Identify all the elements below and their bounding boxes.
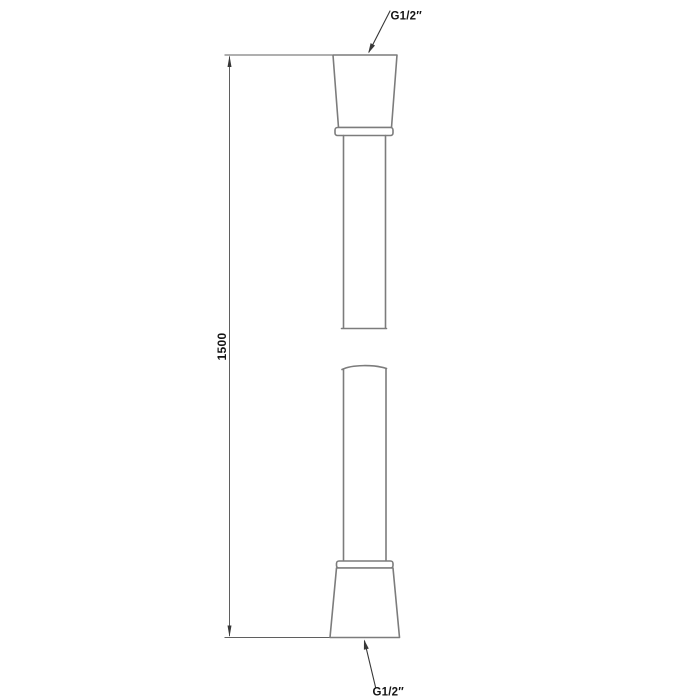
leader-arrow-bottom-icon	[364, 640, 369, 650]
dimension-arrow-down-icon	[228, 626, 232, 638]
bottom-connector-cone	[330, 568, 400, 638]
drawing-canvas: G1/2″ G1/2″ 1500	[0, 0, 700, 700]
top-connector-cone	[333, 55, 397, 128]
top-thread-label: G1/2″	[391, 11, 423, 23]
hose-outline-group	[330, 55, 400, 638]
hose-break-wave-line	[342, 366, 387, 370]
length-dimension-label: 1500	[215, 333, 229, 361]
dimension-group	[225, 55, 335, 638]
top-connector-collar	[335, 128, 393, 136]
dimension-arrow-up-icon	[228, 56, 232, 68]
bottom-connector-collar	[337, 561, 394, 568]
bottom-thread-label: G1/2″	[373, 687, 405, 699]
shower-hose-technical-drawing: G1/2″ G1/2″ 1500	[0, 0, 700, 700]
leader-arrow-top-icon	[368, 43, 375, 53]
